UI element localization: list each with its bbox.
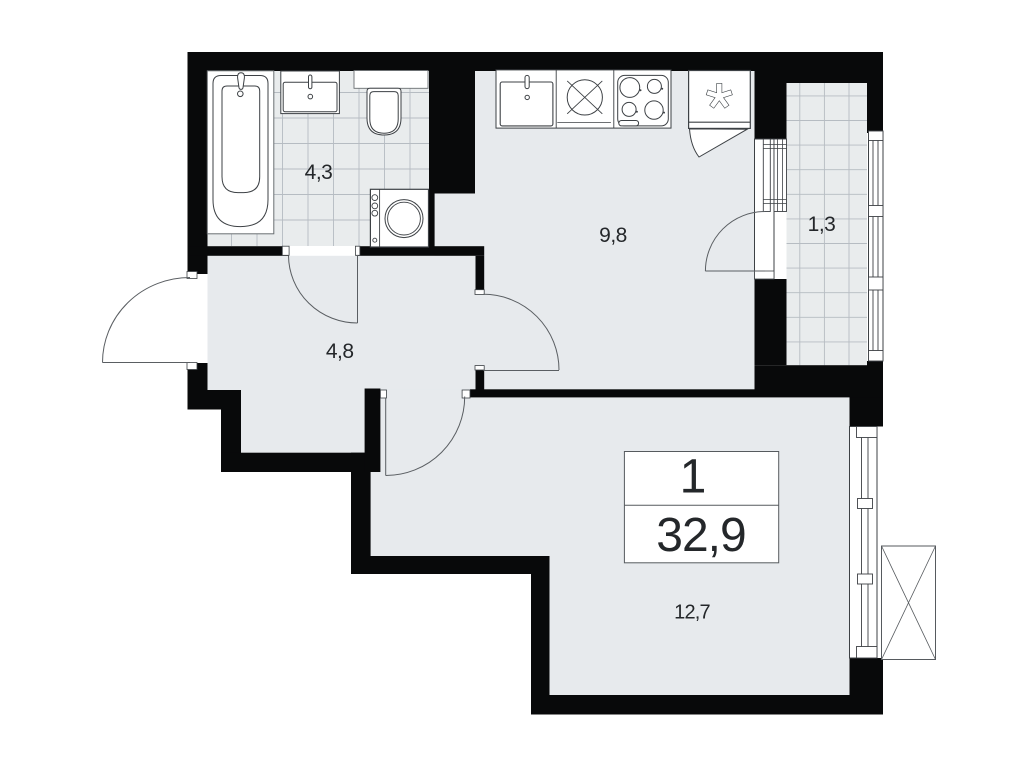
- svg-text:1,3: 1,3: [808, 213, 836, 236]
- svg-text:4,8: 4,8: [326, 340, 354, 363]
- svg-text:9,8: 9,8: [599, 224, 627, 247]
- svg-text:1: 1: [680, 451, 707, 504]
- svg-text:12,7: 12,7: [674, 602, 710, 624]
- svg-text:32,9: 32,9: [656, 509, 745, 562]
- svg-text:4,3: 4,3: [305, 161, 333, 184]
